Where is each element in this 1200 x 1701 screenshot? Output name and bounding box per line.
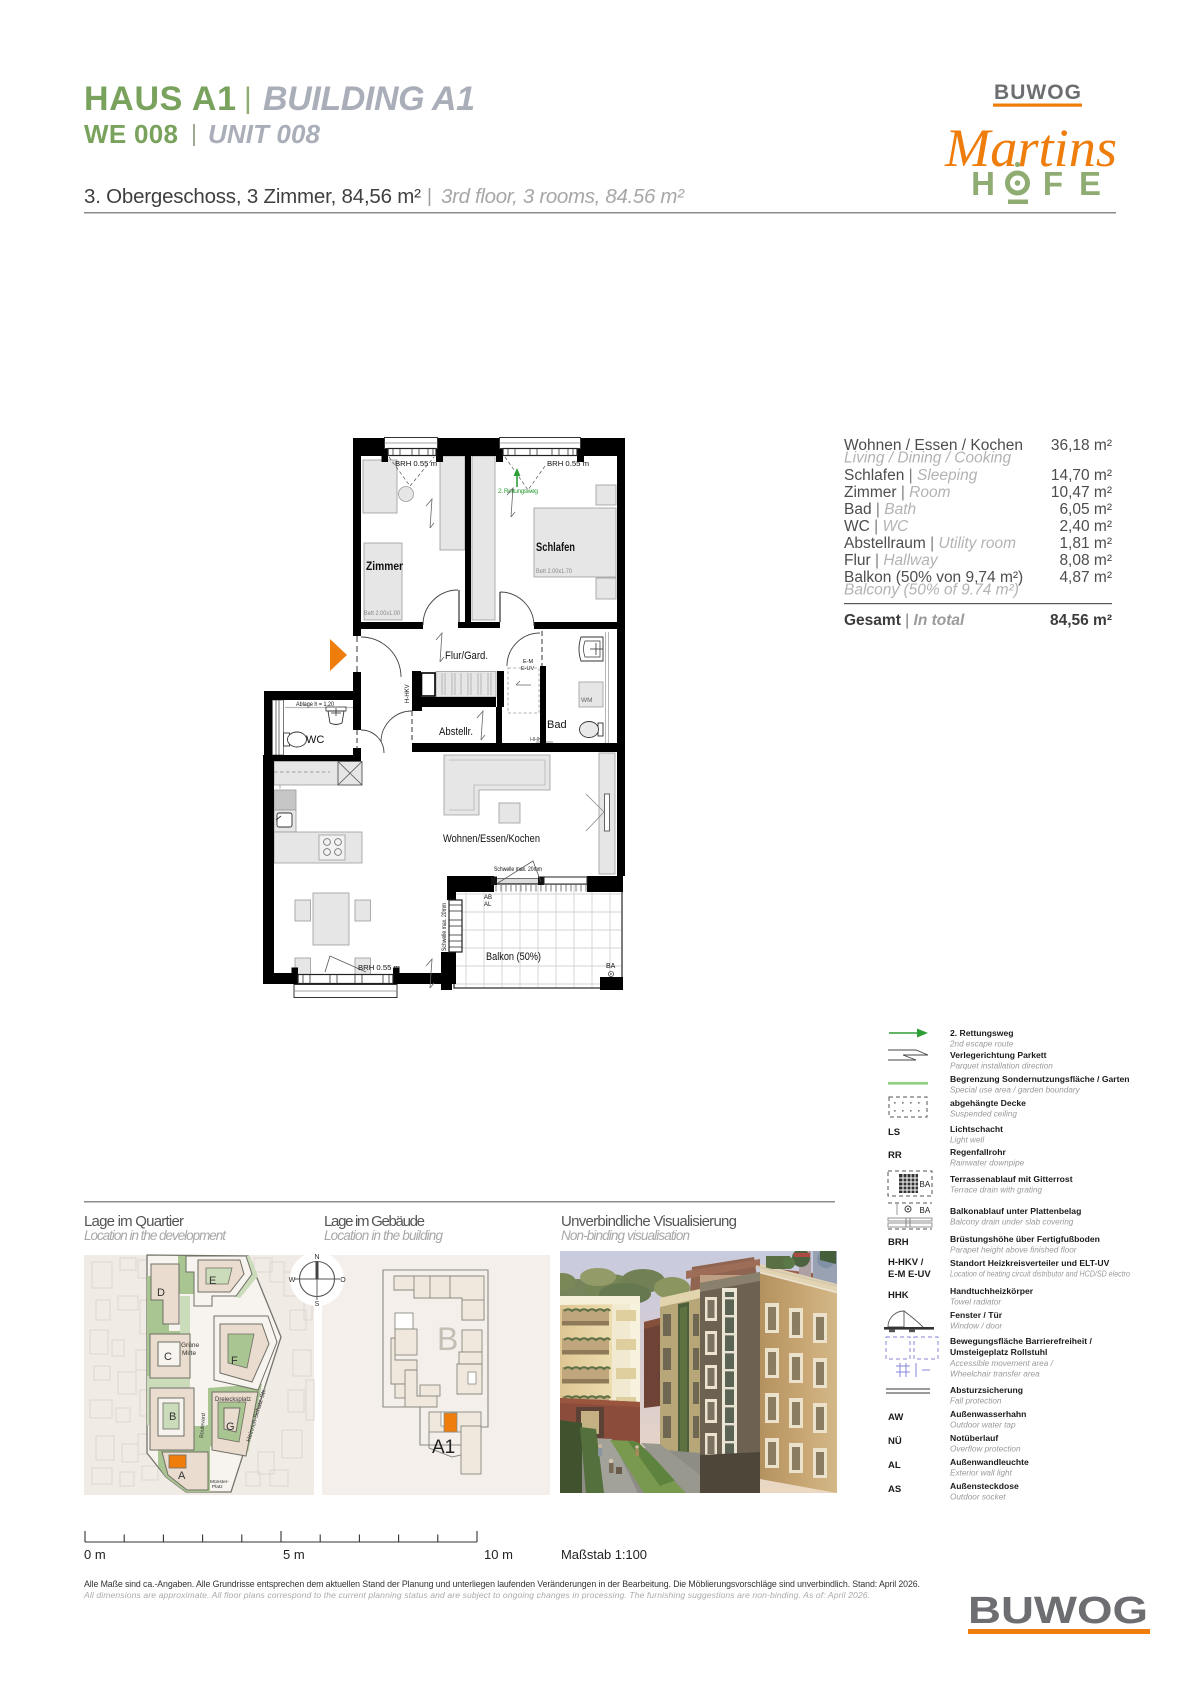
svg-text:Schlafen | Sleeping: Schlafen | Sleeping [844,467,978,484]
svg-text:Non-binding visualisation: Non-binding visualisation [561,1228,690,1243]
svg-text:E: E [1079,165,1101,202]
svg-text:AB: AB [484,895,492,901]
svg-text:Flur/Gard.: Flur/Gard. [445,650,488,662]
svg-text:Ablage h = 1.20: Ablage h = 1.20 [296,701,334,708]
svg-text:AS: AS [888,1484,901,1495]
svg-text:5 m: 5 m [283,1547,305,1562]
svg-text:abgehängte Decke: abgehängte Decke [950,1098,1026,1108]
svg-text:E-UV: E-UV [521,666,534,672]
svg-text:WE 008: WE 008 [84,119,178,149]
svg-text:H-HKV: H-HKV [405,684,411,703]
svg-text:B: B [169,1411,176,1423]
svg-text:WC | WC: WC | WC [844,518,909,535]
svg-text:Wheelchair transfer area: Wheelchair transfer area [950,1370,1040,1379]
svg-text:UNIT 008: UNIT 008 [208,119,321,149]
svg-text:WM: WM [581,697,593,704]
svg-text:H-HKV /: H-HKV / [888,1257,924,1268]
svg-text:Rainwater downpipe: Rainwater downpipe [950,1159,1025,1168]
svg-text:Fall protection: Fall protection [950,1397,1002,1406]
svg-text:Light well: Light well [950,1136,984,1145]
svg-text:Exterior wall light: Exterior wall light [950,1469,1013,1478]
svg-text:Terrace drain with grating: Terrace drain with grating [950,1186,1043,1195]
svg-text:Flur | Hallway: Flur | Hallway [844,552,939,569]
svg-text:Außenwandleuchte: Außenwandleuchte [950,1457,1029,1467]
svg-text:10 m: 10 m [484,1547,513,1562]
svg-text:10,47 m²: 10,47 m² [1051,484,1112,501]
svg-text:Bad | Bath: Bad | Bath [844,501,916,518]
svg-text:Schwelle max. 20mm: Schwelle max. 20mm [441,903,448,951]
svg-text:Außensteckdose: Außensteckdose [950,1481,1019,1491]
svg-text:Zimmer | Room: Zimmer | Room [844,484,951,501]
svg-text:E: E [209,1275,216,1287]
svg-text:RR: RR [888,1150,902,1161]
svg-text:Wohnen/Essen/Kochen: Wohnen/Essen/Kochen [443,833,540,845]
svg-text:Absturzsicherung: Absturzsicherung [950,1385,1023,1395]
svg-text:Dreiecksplatz: Dreiecksplatz [215,1397,251,1403]
svg-text:Fenster / Tür: Fenster / Tür [950,1310,1003,1320]
svg-text:Balcony (50% of 9.74 m²): Balcony (50% of 9.74 m²) [844,582,1019,599]
svg-text:Window / door: Window / door [950,1322,1003,1331]
svg-text:Umsteigeplatz Rollstuhl: Umsteigeplatz Rollstuhl [950,1347,1047,1357]
svg-text:1,81 m²: 1,81 m² [1059,535,1112,552]
svg-text:Accessible movement area /: Accessible movement area / [949,1359,1054,1368]
svg-text:|: | [244,82,252,115]
svg-text:BUWOG: BUWOG [968,1590,1148,1632]
svg-text:Location in the development: Location in the development [84,1228,227,1243]
svg-text:Abstellr.: Abstellr. [439,726,473,738]
svg-text:Outdoor socket: Outdoor socket [950,1493,1006,1502]
svg-text:Terrassenablauf mit Gitterrost: Terrassenablauf mit Gitterrost [950,1174,1073,1184]
svg-text:Notüberlauf: Notüberlauf [950,1433,998,1443]
svg-text:Begrenzung Sondernutzungsfläch: Begrenzung Sondernutzungsfläche / Garten [950,1074,1130,1084]
svg-text:Bett 2.00x1.70: Bett 2.00x1.70 [536,568,572,575]
svg-text:BRH 0.55 m: BRH 0.55 m [395,459,437,468]
svg-text:Outdoor water tap: Outdoor water tap [950,1421,1016,1430]
svg-text:All dimensions are approximate: All dimensions are approximate. All floo… [83,1590,870,1600]
svg-text:0 m: 0 m [84,1547,106,1562]
svg-text:Abstellraum | Utility room: Abstellraum | Utility room [844,535,1016,552]
svg-text:Grüne: Grüne [181,1342,199,1349]
svg-text:BA: BA [920,1180,931,1189]
svg-text:Standort Heizkreisverteiler un: Standort Heizkreisverteiler und ELT-UV [950,1258,1110,1268]
svg-text:8,08 m²: 8,08 m² [1059,552,1112,569]
svg-text:BRH: BRH [888,1237,909,1248]
svg-text:H: H [971,165,995,202]
svg-text:BA: BA [606,963,616,970]
svg-text:6,05 m²: 6,05 m² [1059,501,1112,518]
svg-text:Maßstab 1:100: Maßstab 1:100 [561,1547,647,1562]
svg-text:LS: LS [888,1127,900,1138]
svg-text:Parquet installation direction: Parquet installation direction [950,1062,1053,1071]
svg-text:BRH 0.55 m: BRH 0.55 m [547,459,589,468]
svg-text:Location in the building: Location in the building [324,1228,443,1243]
svg-text:Schwelle max. 20mm: Schwelle max. 20mm [494,866,542,873]
svg-text:HHK: HHK [888,1290,909,1301]
svg-text:Zimmer: Zimmer [366,561,403,573]
svg-text:W: W [289,1277,296,1284]
svg-text:O: O [340,1277,346,1284]
svg-text:Bewegungsfläche Barrierefreihe: Bewegungsfläche Barrierefreiheit / [950,1336,1092,1346]
svg-text:Living / Dining / Cooking: Living / Dining / Cooking [844,450,1012,467]
svg-text:Handtuchheizkörper: Handtuchheizkörper [950,1286,1034,1296]
svg-text:|: | [427,186,432,207]
svg-text:Schlafen: Schlafen [536,542,575,554]
svg-text:Balcony drain under slab cover: Balcony drain under slab covering [950,1218,1074,1227]
svg-text:E-M E-UV: E-M E-UV [888,1269,931,1280]
svg-text:A1: A1 [432,1437,455,1458]
svg-text:Overflow protection: Overflow protection [950,1445,1021,1454]
svg-text:Bett 2.00x1.00: Bett 2.00x1.00 [364,610,400,617]
svg-text:BA: BA [920,1206,931,1215]
svg-text:D: D [157,1287,165,1299]
svg-text:Balkonablauf unter Plattenbela: Balkonablauf unter Plattenbelag [950,1206,1081,1216]
svg-text:2nd escape route: 2nd escape route [949,1040,1014,1049]
svg-text:4,87 m²: 4,87 m² [1059,569,1112,586]
svg-text:Parapet height above finished: Parapet height above finished floor [950,1246,1077,1255]
svg-text:HAUS A1: HAUS A1 [84,80,236,118]
svg-text:84,56 m²: 84,56 m² [1050,612,1112,629]
svg-text:Brüstungshöhe über Fertigfußbo: Brüstungshöhe über Fertigfußboden [950,1234,1100,1244]
svg-text:BRH 0.55 m: BRH 0.55 m [358,963,400,972]
svg-text:3. Obergeschoss, 3 Zimmer, 84,: 3. Obergeschoss, 3 Zimmer, 84,56 m² [84,185,421,208]
svg-text:E-M: E-M [523,659,534,665]
svg-text:C: C [164,1351,172,1363]
svg-text:Balkon (50%): Balkon (50%) [486,951,541,963]
svg-text:S: S [315,1301,320,1308]
svg-text:2. Rettungsweg: 2. Rettungsweg [498,488,538,495]
svg-text:AW: AW [888,1412,903,1423]
svg-text:Bad: Bad [547,719,567,731]
svg-text:WC: WC [306,734,324,746]
svg-text:Gesamt | In total: Gesamt | In total [844,612,965,629]
svg-text:N: N [314,1254,319,1261]
svg-text:2. Rettungsweg: 2. Rettungsweg [950,1028,1014,1038]
svg-text:Regenfallrohr: Regenfallrohr [950,1147,1007,1157]
svg-text:BUILDING A1: BUILDING A1 [263,80,475,118]
svg-text:Außenwasserhahn: Außenwasserhahn [950,1409,1026,1419]
svg-text:14,70 m²: 14,70 m² [1051,467,1112,484]
svg-text:Alle Maße sind ca.-Angaben. Al: Alle Maße sind ca.-Angaben. Alle Grundri… [84,1579,920,1589]
svg-text:2,40 m²: 2,40 m² [1059,518,1112,535]
svg-text:Mitte: Mitte [182,1350,196,1357]
svg-text:Platz: Platz [212,1484,223,1490]
svg-text:A: A [178,1470,186,1482]
svg-text:Special use area / garden boun: Special use area / garden boundary [950,1086,1081,1095]
svg-text:NÜ: NÜ [888,1436,902,1447]
svg-text:Lichtschacht: Lichtschacht [950,1124,1003,1134]
svg-text:B: B [437,1321,458,1357]
svg-text:Verlegerichtung Parkett: Verlegerichtung Parkett [950,1050,1047,1060]
svg-text:Towel radiator: Towel radiator [950,1298,1001,1307]
svg-text:AL: AL [888,1460,901,1471]
svg-text:36,18 m²: 36,18 m² [1051,437,1112,454]
svg-text:|: | [191,120,197,146]
svg-text:Suspended ceiling: Suspended ceiling [950,1110,1017,1119]
svg-text:BUWOG: BUWOG [994,81,1081,104]
svg-text:Location of heating circuit di: Location of heating circuit distributor … [950,1270,1130,1279]
svg-text:F: F [1043,165,1063,202]
svg-text:G: G [226,1421,235,1433]
svg-text:F: F [231,1355,238,1367]
svg-text:AL: AL [484,902,492,908]
svg-text:3rd floor, 3 rooms, 84.56 m²: 3rd floor, 3 rooms, 84.56 m² [441,185,685,208]
